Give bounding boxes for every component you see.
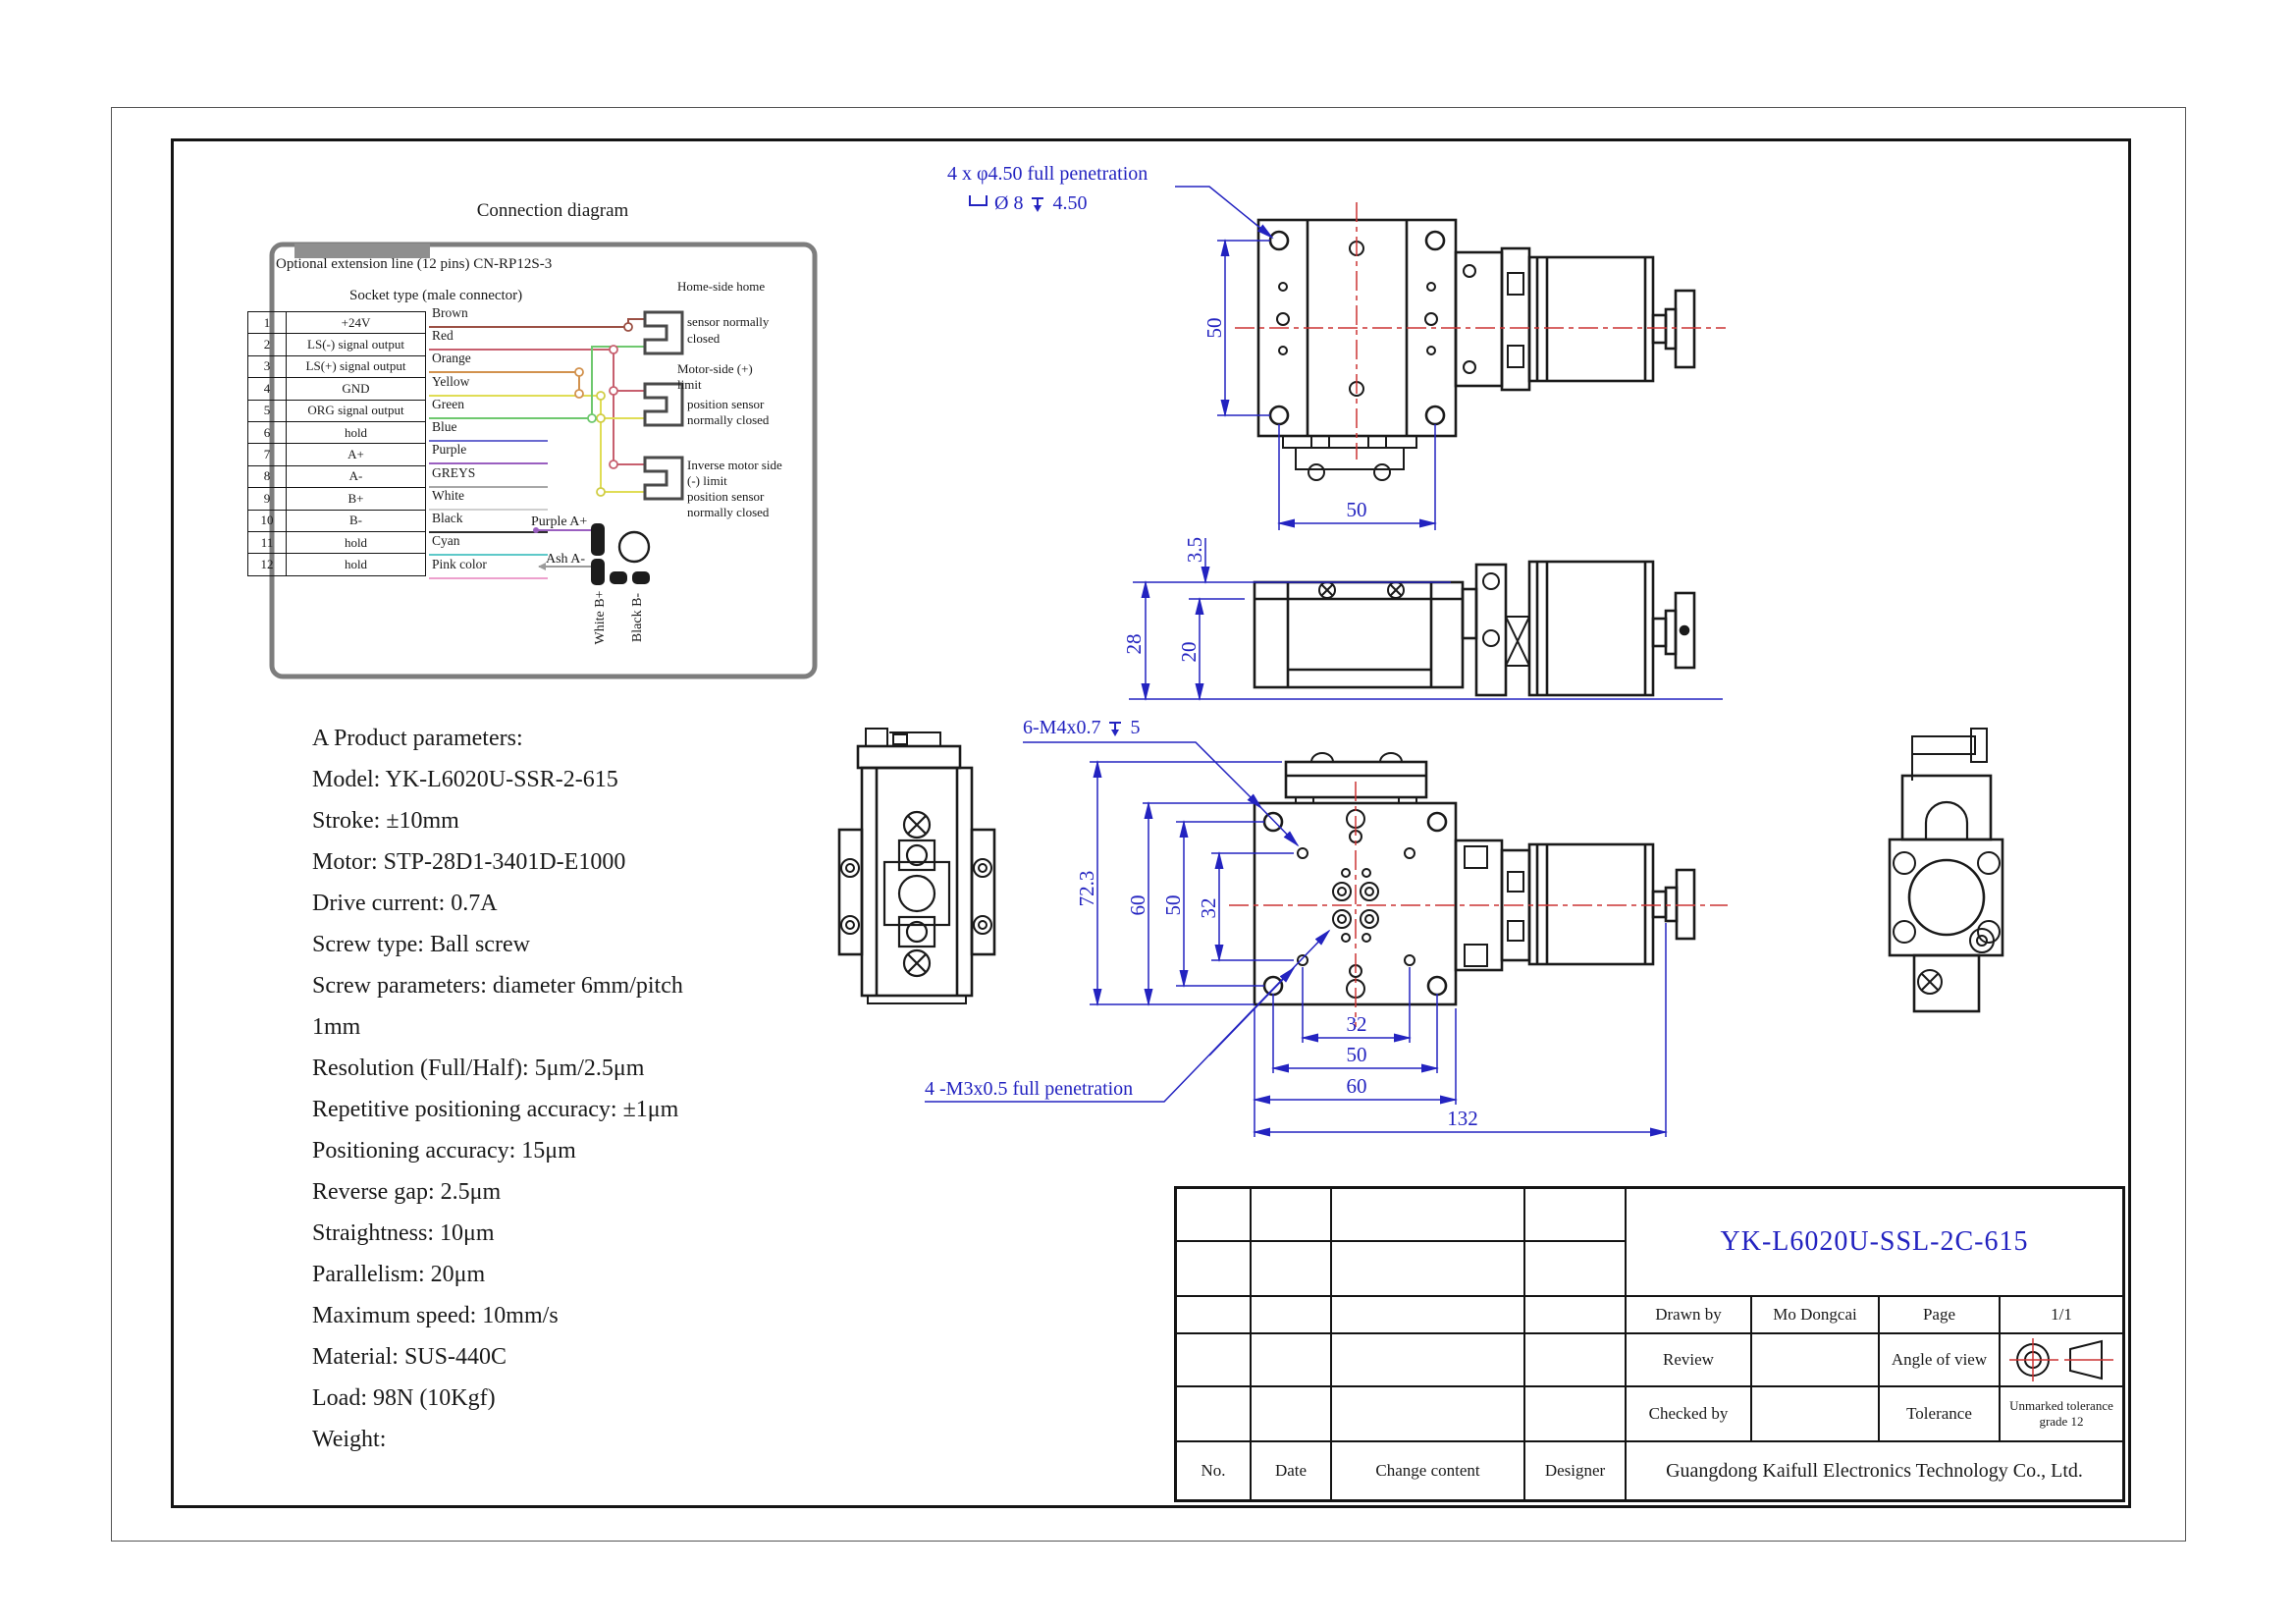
wire-label-pink: Pink color (432, 558, 487, 571)
title-block-empty-cell (1525, 1334, 1625, 1385)
title-block-empty-cell (1177, 1189, 1250, 1240)
connection-diagram-title: Connection diagram (450, 200, 656, 222)
param-line-16: Load: 98N (10Kgf) (312, 1386, 496, 1410)
title-block-empty-cell (1332, 1242, 1523, 1295)
param-line-13: Parallelism: 20μm (312, 1263, 485, 1286)
counterbore-note: Ø 8 4.50 (969, 192, 1087, 215)
param-line-4: Drive current: 0.7A (312, 892, 498, 915)
pin-signal: A- (287, 465, 426, 487)
pin-signal: hold (287, 421, 426, 443)
pin-signal: B+ (287, 488, 426, 510)
title-block-empty-cell (1177, 1297, 1250, 1332)
param-line-1: Model: YK-L6020U-SSR-2-615 (312, 768, 618, 791)
wire-label-white: White (432, 489, 464, 503)
wire-label-black: Black (432, 512, 463, 525)
param-line-15: Material: SUS-440C (312, 1345, 507, 1369)
title-block-empty-cell (1177, 1334, 1250, 1385)
pin-row: 4GND (248, 378, 426, 400)
sensor2-title-2: limit (677, 377, 702, 392)
checked-by-label: Checked by (1627, 1387, 1750, 1440)
pin-row: 10B- (248, 510, 426, 531)
depth-symbol-icon (1030, 195, 1045, 213)
pin-row: 11hold (248, 531, 426, 553)
pin-row: 8A- (248, 465, 426, 487)
depth-symbol-icon (1107, 720, 1123, 737)
sensor3-text-4: normally closed (687, 505, 769, 519)
drawing-sheet: 50 50 3.5 28 20 72.3 60 50 32 32 50 60 1… (0, 0, 2296, 1624)
counterbore-depth: 4.50 (1052, 192, 1087, 215)
title-block-empty-cell (1252, 1242, 1330, 1295)
param-line-6: Screw parameters: diameter 6mm/pitch (312, 974, 683, 998)
pin-row: 9B+ (248, 488, 426, 510)
wire-label-cyan: Cyan (432, 534, 460, 548)
sensor2-text-2: normally closed (687, 412, 769, 427)
projection-symbol-cell (2001, 1334, 2122, 1385)
motor-phase-b-plus-label: White B+ (593, 583, 609, 652)
pin-no: 2 (248, 334, 287, 355)
title-block: YK-L6020U-SSL-2C-615 Drawn by Mo Dongcai… (1174, 1186, 2125, 1502)
drawn-by-label: Drawn by (1627, 1297, 1750, 1332)
pin-no: 7 (248, 444, 287, 465)
pin-no: 8 (248, 465, 287, 487)
title-block-empty-cell (1332, 1334, 1523, 1385)
param-line-12: Straightness: 10μm (312, 1221, 495, 1245)
param-line-11: Reverse gap: 2.5μm (312, 1180, 501, 1204)
pin-signal: +24V (287, 312, 426, 334)
drawn-by-value: Mo Dongcai (1752, 1297, 1878, 1332)
pin-signal: hold (287, 531, 426, 553)
pin-signal: LS(-) signal output (287, 334, 426, 355)
pin-signal: GND (287, 378, 426, 400)
counterbore-diameter: Ø 8 (994, 192, 1023, 215)
pin-no: 12 (248, 554, 287, 575)
sensor2-text-1: position sensor (687, 397, 764, 411)
wire-label-green: Green (432, 398, 464, 411)
tolerance-label: Tolerance (1880, 1387, 1999, 1440)
title-block-empty-cell (1252, 1334, 1330, 1385)
wire-label-orange: Orange (432, 352, 471, 365)
pin-row: 6hold (248, 421, 426, 443)
title-block-empty-cell (1332, 1387, 1523, 1440)
pin-no: 1 (248, 312, 287, 334)
pin-signal: B- (287, 510, 426, 531)
checked-by-value-cell (1752, 1387, 1878, 1440)
pin-no: 5 (248, 400, 287, 421)
company-name: Guangdong Kaifull Electronics Technology… (1627, 1442, 2122, 1499)
sensor1-title: Home-side home (677, 279, 765, 294)
wire-label-yellow: Yellow (432, 375, 469, 389)
title-block-empty-cell (1252, 1189, 1330, 1240)
pin-row: 3LS(+) signal output (248, 355, 426, 377)
pin-row: 5ORG signal output (248, 400, 426, 421)
tapped-hole-text: 6-M4x0.7 (1023, 717, 1100, 739)
m3-hole-note: 4 -M3x0.5 full penetration (925, 1078, 1133, 1101)
param-line-0: A Product parameters: (312, 727, 523, 750)
title-block-empty-cell (1332, 1189, 1523, 1240)
counterbore-symbol-icon (969, 195, 988, 206)
title-block-empty-cell (1525, 1387, 1625, 1440)
pin-signal: hold (287, 554, 426, 575)
designer-label: Designer (1525, 1442, 1625, 1499)
m3-hole-text: 4 -M3x0.5 full penetration (925, 1078, 1133, 1101)
tapped-hole-note: 6-M4x0.7 5 (1023, 717, 1140, 739)
param-line-2: Stroke: ±10mm (312, 809, 459, 833)
review-label: Review (1627, 1334, 1750, 1385)
param-line-8: Resolution (Full/Half): 5μm/2.5μm (312, 1056, 644, 1080)
param-line-14: Maximum speed: 10mm/s (312, 1304, 559, 1327)
pin-no: 9 (248, 488, 287, 510)
sensor2-title-1: Motor-side (+) (677, 361, 753, 376)
change-content-label: Change content (1332, 1442, 1523, 1499)
sensor3-text-3: position sensor (687, 489, 764, 504)
pin-no: 4 (248, 378, 287, 400)
param-line-10: Positioning accuracy: 15μm (312, 1139, 576, 1163)
param-line-9: Repetitive positioning accuracy: ±1μm (312, 1098, 678, 1121)
hole-note-top-view: 4 x φ4.50 full penetration (947, 163, 1148, 186)
wire-label-red: Red (432, 329, 454, 343)
pin-row: 1+24V (248, 312, 426, 334)
tolerance-value: Unmarked tolerance grade 12 (2001, 1387, 2122, 1440)
pin-signal: A+ (287, 444, 426, 465)
motor-phase-a-minus-label: Ash A- (546, 552, 585, 568)
pin-row: 2LS(-) signal output (248, 334, 426, 355)
param-line-3: Motor: STP-28D1-3401D-E1000 (312, 850, 625, 874)
title-block-empty-cell (1252, 1387, 1330, 1440)
motor-phase-b-minus-label: Black B- (630, 583, 646, 652)
pin-signal: ORG signal output (287, 400, 426, 421)
page-value: 1/1 (2001, 1297, 2122, 1332)
date-label: Date (1252, 1442, 1330, 1499)
wire-label-brown: Brown (432, 306, 468, 320)
title-block-empty-cell (1525, 1297, 1625, 1332)
pin-no: 3 (248, 355, 287, 377)
socket-type-label: Socket type (male connector) (349, 288, 522, 304)
pin-no: 11 (248, 531, 287, 553)
title-block-empty-cell (1525, 1189, 1625, 1240)
pin-no: 10 (248, 510, 287, 531)
tapped-hole-depth: 5 (1130, 717, 1140, 739)
first-angle-projection-icon (2003, 1336, 2119, 1383)
sensor1-text-1: sensor normally (687, 314, 769, 329)
param-line-5: Screw type: Ball screw (312, 933, 530, 956)
pin-signal: LS(+) signal output (287, 355, 426, 377)
review-value-cell (1752, 1334, 1878, 1385)
pin-row: 12hold (248, 554, 426, 575)
title-block-empty-cell (1177, 1242, 1250, 1295)
sensor1-text-2: closed (687, 331, 720, 346)
page-label: Page (1880, 1297, 1999, 1332)
pin-no: 6 (248, 421, 287, 443)
title-block-empty-cell (1332, 1297, 1523, 1332)
param-line-17: Weight: (312, 1428, 386, 1451)
pin-row: 7A+ (248, 444, 426, 465)
optional-extension-line-label: Optional extension line (12 pins) CN-RP1… (276, 256, 552, 273)
no-label: No. (1177, 1442, 1250, 1499)
title-block-empty-cell (1525, 1242, 1625, 1295)
pin-table: 1+24V 2LS(-) signal output 3LS(+) signal… (247, 311, 426, 576)
motor-phase-a-plus-label: Purple A+ (531, 514, 587, 530)
drawing-model-number: YK-L6020U-SSL-2C-615 (1627, 1189, 2122, 1295)
param-line-7: 1mm (312, 1015, 360, 1039)
angle-of-view-label: Angle of view (1880, 1334, 1999, 1385)
hole-note-text: 4 x φ4.50 full penetration (947, 163, 1148, 186)
wire-label-blue: Blue (432, 420, 457, 434)
sensor3-text-2: (-) limit (687, 473, 727, 488)
title-block-empty-cell (1252, 1297, 1330, 1332)
wire-label-greys: GREYS (432, 466, 475, 480)
wire-label-purple: Purple (432, 443, 466, 457)
sensor3-text-1: Inverse motor side (687, 458, 782, 472)
title-block-empty-cell (1177, 1387, 1250, 1440)
